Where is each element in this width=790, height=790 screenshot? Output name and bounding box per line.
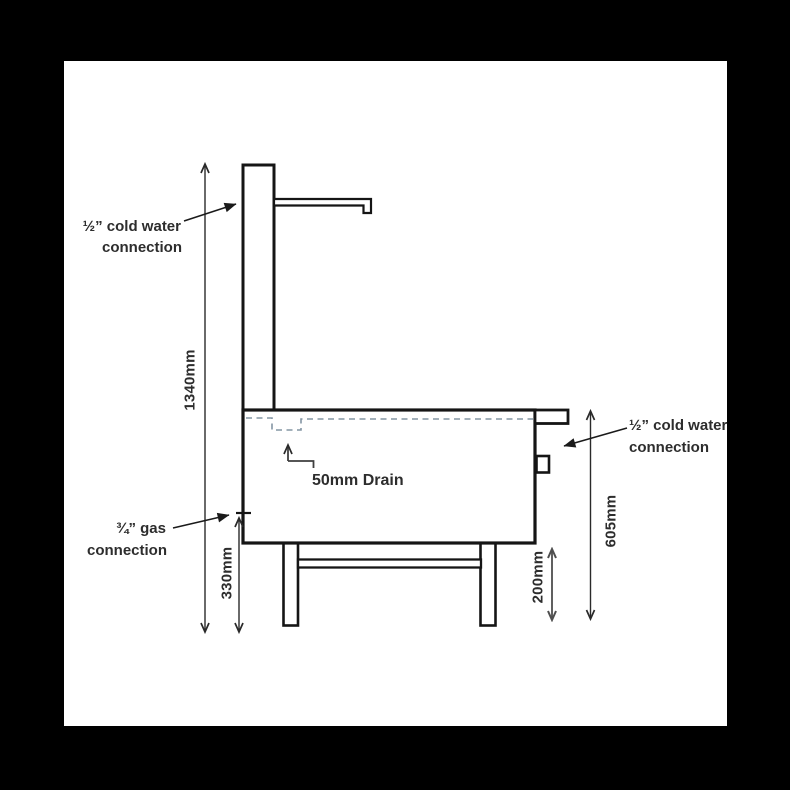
drain-label: 50mm Drain [312, 472, 404, 489]
screenshot-frame: 50mm Drain 1340mm 330mm 200mm 605mm ½” c… [0, 0, 790, 790]
right-water-connection-box [537, 456, 550, 473]
right-leg [481, 540, 496, 626]
clearance-dim-label: 200mm [530, 551, 547, 604]
gas-label-line2: connection [87, 542, 167, 559]
right-water-label-line2: connection [629, 439, 709, 456]
right-water-leader-arrow [564, 428, 627, 446]
gas-label-line1: ¾” gas [116, 520, 166, 537]
overall-height-dim-label: 1340mm [182, 349, 199, 410]
upstand-column [243, 165, 274, 410]
top-water-label-line2: connection [102, 239, 182, 256]
left-leg [284, 540, 299, 626]
tap-spout-arm [274, 199, 371, 213]
top-water-label-line1: ½” cold water [83, 218, 182, 235]
gas-leader-arrow [173, 515, 229, 528]
top-water-leader-arrow [184, 204, 236, 221]
worktop-height-dim-label: 605mm [603, 495, 620, 548]
gas-height-dim-label: 330mm [219, 547, 236, 600]
right-water-label-line1: ½” cold water [629, 417, 728, 434]
leg-stretcher-bar [298, 560, 481, 568]
equipment-side-elevation-diagram: 50mm Drain 1340mm 330mm 200mm 605mm ½” c… [0, 0, 790, 790]
right-rim-ledge [535, 410, 568, 424]
